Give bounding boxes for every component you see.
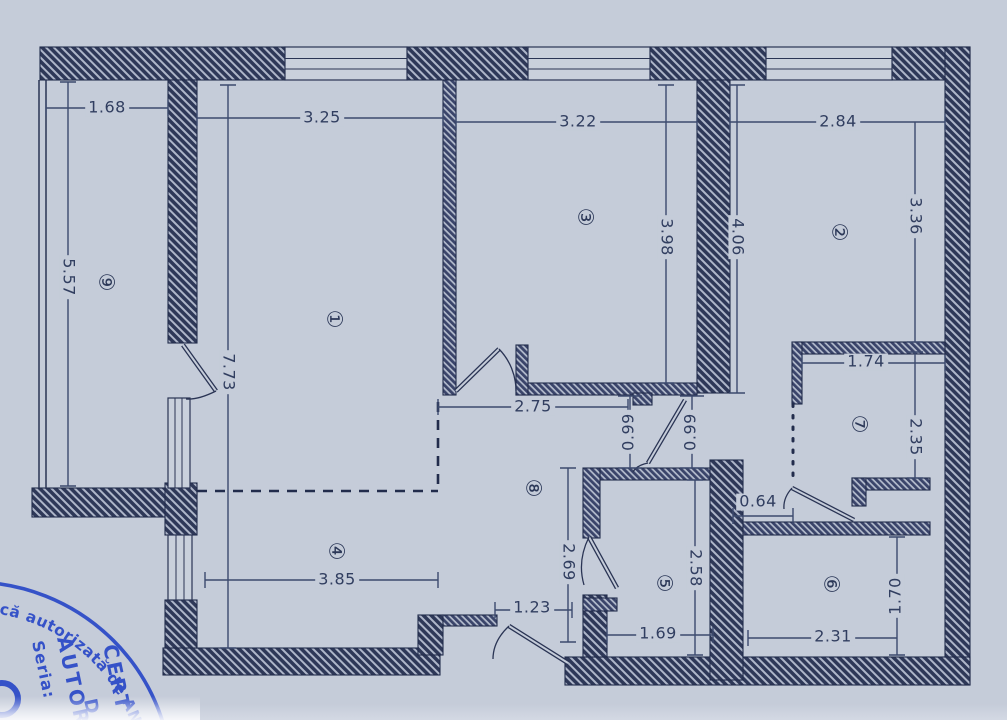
dashed-boundary-rooms-1-4 — [197, 402, 438, 491]
dim-lobby-width: 0.64 — [736, 494, 780, 511]
window-top-2 — [528, 47, 650, 80]
dim-room4-width: 3.85 — [315, 572, 359, 589]
room-label-9: ⑨ — [96, 273, 117, 292]
room-label-7: ⑦ — [849, 415, 870, 434]
dim-balcony-length: 5.57 — [60, 255, 77, 299]
dim-entrance-width: 1.23 — [510, 600, 554, 617]
dim-hall-width: 2.75 — [511, 399, 555, 416]
dim-room3-height: 3.98 — [658, 215, 675, 259]
window-room4 — [168, 535, 192, 600]
dim-room7-width: 1.74 — [844, 354, 888, 371]
room-label-6: ⑥ — [821, 575, 842, 594]
dim-room6-width: 2.31 — [811, 629, 855, 646]
dim-door-b: 0.99 — [683, 410, 700, 454]
photo-corner-highlight — [0, 696, 200, 720]
room-label-2: ② — [829, 223, 850, 242]
dim-room2-width: 2.84 — [816, 114, 860, 131]
room-label-1: ① — [324, 310, 345, 329]
dim-room7-height: 2.35 — [907, 415, 924, 459]
window-top-1 — [285, 47, 407, 80]
dim-room6-height: 1.70 — [888, 574, 905, 618]
room-label-8: ⑧ — [523, 479, 544, 498]
room-label-5: ⑤ — [654, 574, 675, 593]
room-label-4: ④ — [326, 542, 347, 561]
floor-plan: că autorizată de ANCPI să ex CERT D AUTO… — [0, 0, 1007, 720]
balcony-railing — [39, 80, 46, 488]
dim-door-a: 0.99 — [621, 410, 638, 454]
dim-room1-depth: 7.73 — [220, 350, 237, 394]
dim-room5-height-right: 2.58 — [687, 546, 704, 590]
window-top-3 — [766, 47, 892, 80]
room-label-3: ③ — [575, 208, 596, 227]
dim-room2-wall-height: 4.06 — [729, 215, 746, 259]
windows — [168, 47, 892, 600]
window-balcony — [168, 398, 190, 488]
dim-room2-height: 3.36 — [907, 194, 924, 238]
dim-room1-width: 3.25 — [300, 110, 344, 127]
dim-room5-height-left: 2.69 — [560, 540, 577, 584]
dim-room5-width: 1.69 — [636, 626, 680, 643]
dim-balcony-width: 1.68 — [85, 100, 129, 117]
dim-room3-width: 3.22 — [556, 114, 600, 131]
